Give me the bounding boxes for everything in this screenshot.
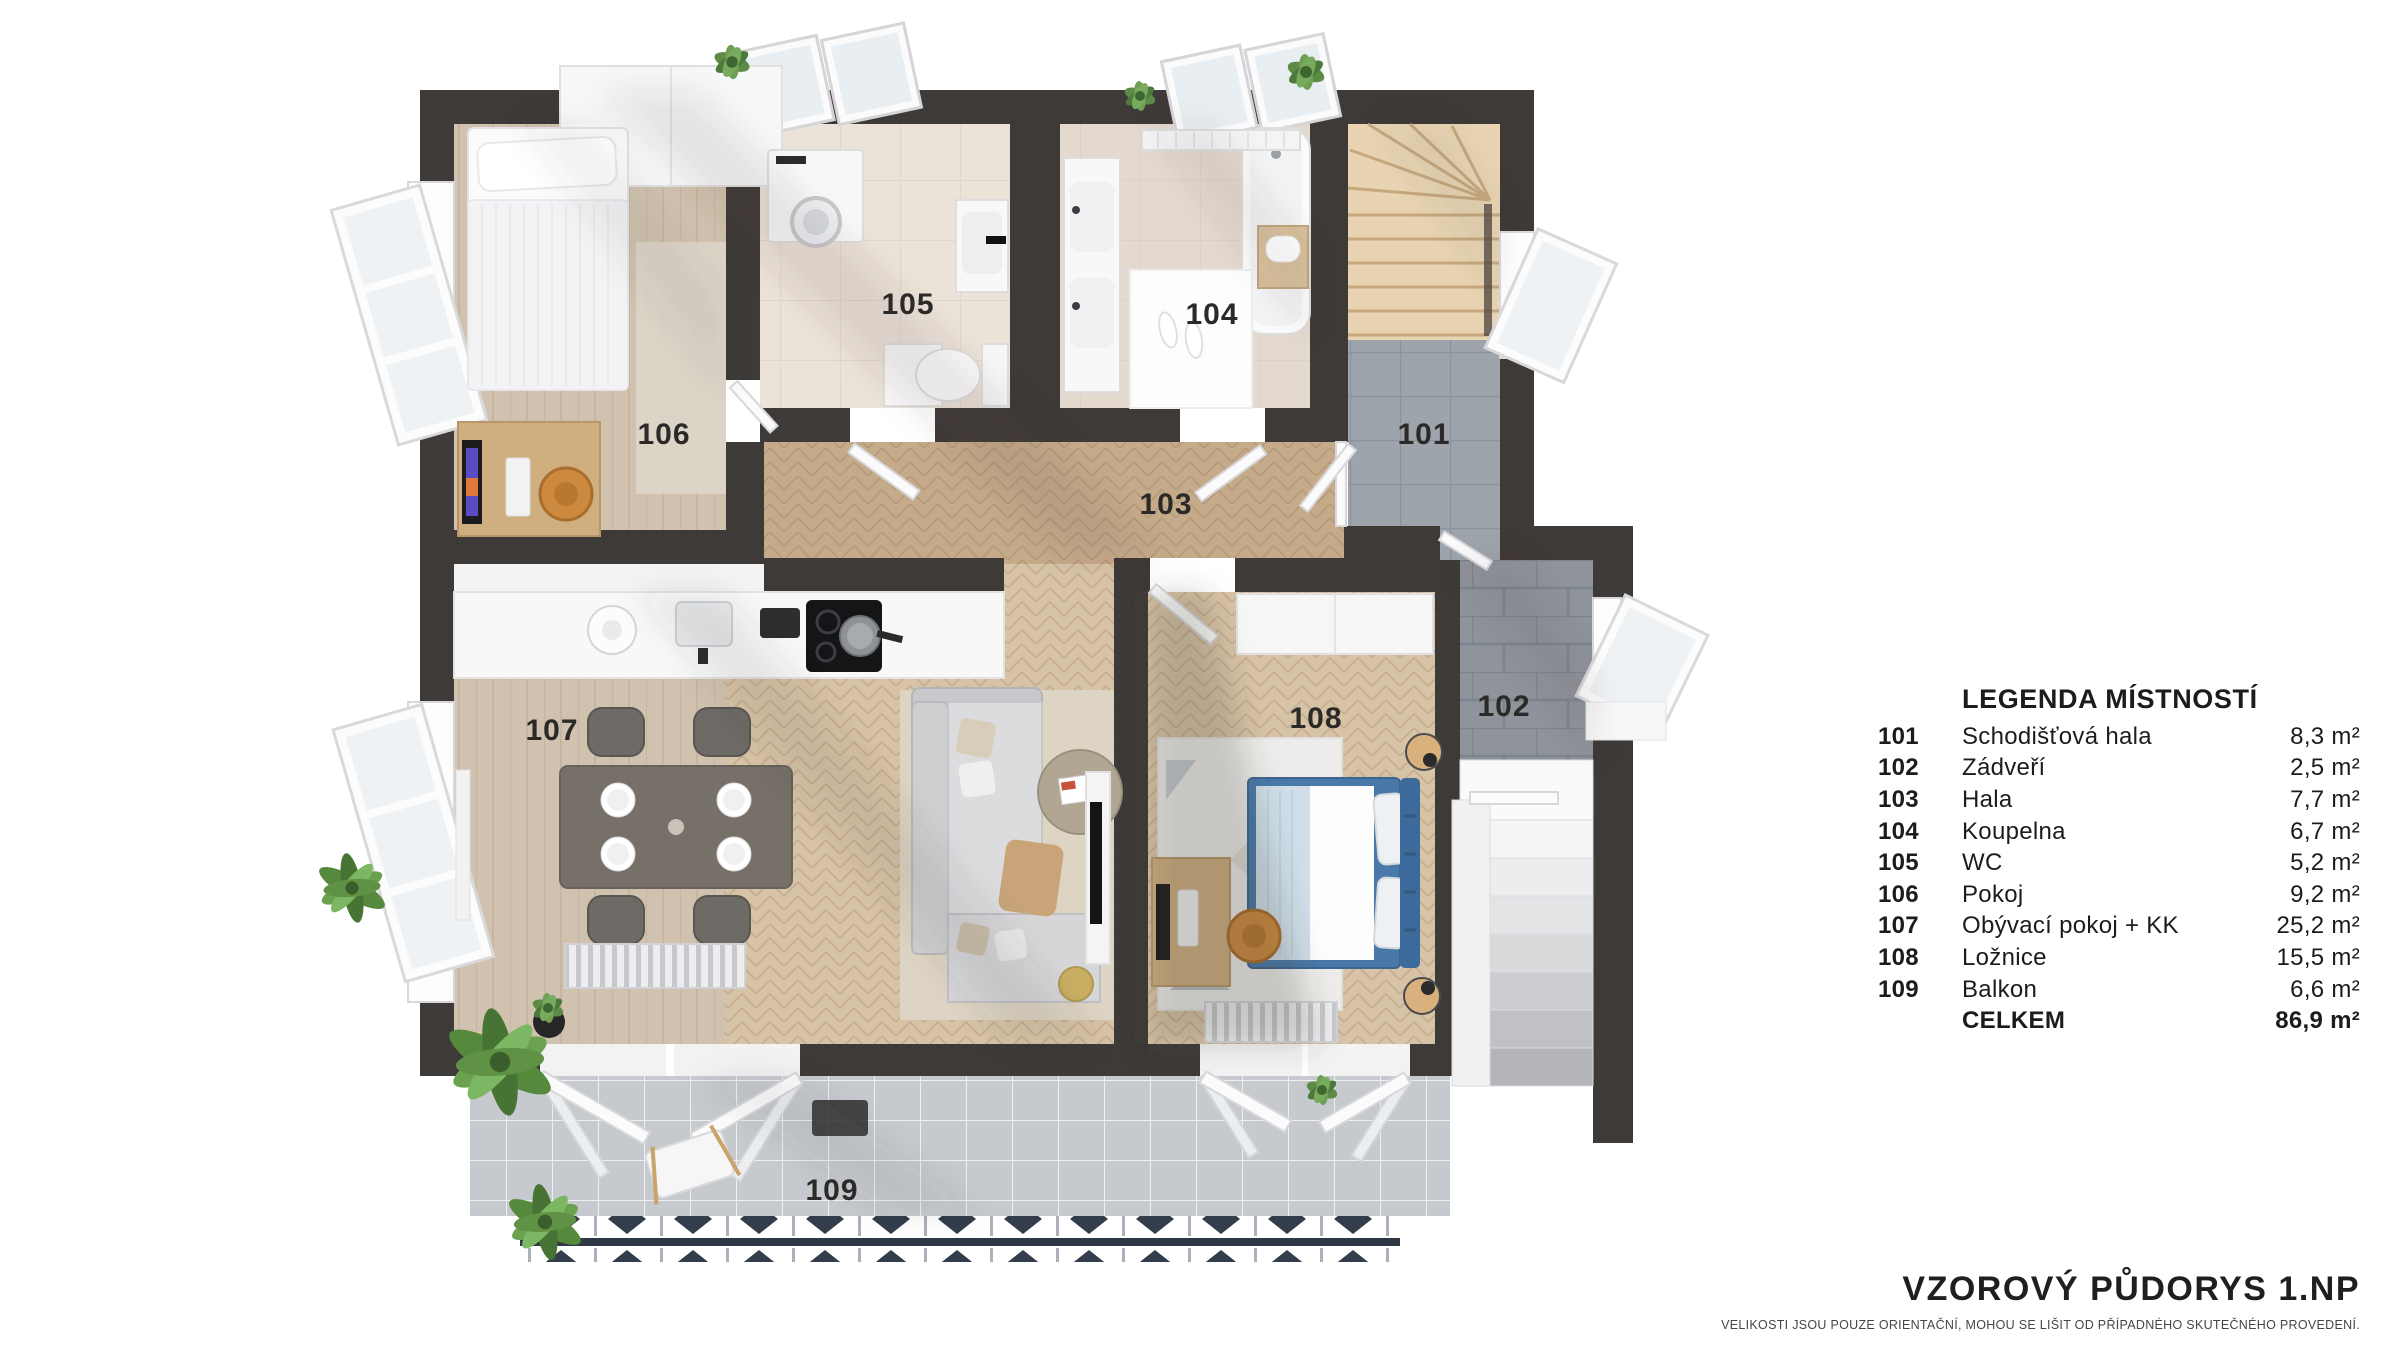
- legend-room-area: 7,7 m²: [2290, 786, 2360, 814]
- room-label-108: 108: [1289, 702, 1342, 735]
- room-label-105: 105: [881, 288, 934, 321]
- legend-row: 108 Ložnice 15,5 m²: [1878, 942, 2360, 974]
- legend-room-name: Pokoj: [1962, 881, 2290, 909]
- legend-room-area: 6,6 m²: [2290, 976, 2360, 1004]
- sink-icon: [956, 200, 1008, 292]
- legend-row: 103 Hala 7,7 m²: [1878, 784, 2360, 816]
- legend-room-name: Hala: [1962, 786, 2290, 814]
- throw-blanket: [997, 838, 1064, 917]
- legend-row: 105 WC 5,2 m²: [1878, 847, 2360, 879]
- legend-room-number: 109: [1878, 976, 1962, 1004]
- room-label-103: 103: [1139, 488, 1192, 521]
- door-102-entry: [1470, 792, 1558, 804]
- room-label-102: 102: [1477, 690, 1530, 723]
- legend-row: 102 Zádveří 2,5 m²: [1878, 753, 2360, 785]
- legend-title: LEGENDA MÍSTNOSTÍ: [1962, 684, 2360, 715]
- legend-row: 107 Obývací pokoj + KK 25,2 m²: [1878, 911, 2360, 943]
- legend-room-area: 6,7 m²: [2290, 818, 2360, 846]
- legend-room-number: 101: [1878, 723, 1962, 751]
- legend-room-name: Zádveří: [1962, 754, 2290, 782]
- radiator-icon: [456, 770, 470, 920]
- legend-room-name: WC: [1962, 849, 2290, 877]
- side-stool: [1059, 967, 1093, 1001]
- legend-room-name: Balkon: [1962, 976, 2290, 1004]
- legend-room-number: 103: [1878, 786, 1962, 814]
- legend-room-name: Obývací pokoj + KK: [1962, 912, 2277, 940]
- legend-room-number: 104: [1878, 818, 1962, 846]
- room-legend: LEGENDA MÍSTNOSTÍ 101 Schodišťová hala 8…: [1878, 684, 2360, 1037]
- legend-row: 101 Schodišťová hala 8,3 m²: [1878, 721, 2360, 753]
- legend-room-area: 9,2 m²: [2290, 881, 2360, 909]
- legend-room-name: Ložnice: [1962, 944, 2277, 972]
- plan-footer: VZOROVÝ PŮDORYS 1.NP VELIKOSTI JSOU POUZ…: [1721, 1270, 2360, 1332]
- window-102: [1576, 595, 1708, 740]
- double-washbasin-icon: [1064, 158, 1120, 392]
- nightstand-icon: [1404, 978, 1440, 1014]
- legend-row: 106 Pokoj 9,2 m²: [1878, 879, 2360, 911]
- legend-total-label: CELKEM: [1962, 1007, 2275, 1035]
- legend-room-name: Koupelna: [1962, 818, 2290, 846]
- legend-room-number: 107: [1878, 912, 1962, 940]
- legend-row: 109 Balkon 6,6 m²: [1878, 974, 2360, 1006]
- legend-room-area: 5,2 m²: [2290, 849, 2360, 877]
- nightstand-icon: [1406, 734, 1442, 770]
- bench: [565, 944, 745, 988]
- room-label-106: 106: [637, 418, 690, 451]
- keyboard: [506, 458, 530, 516]
- legend-total-area: 86,9 m²: [2275, 1007, 2360, 1035]
- legend-room-area: 2,5 m²: [2290, 754, 2360, 782]
- legend-room-area: 8,3 m²: [2290, 723, 2360, 751]
- room-label-104: 104: [1185, 298, 1238, 331]
- plan-title: VZOROVÝ PŮDORYS 1.NP: [1721, 1270, 2360, 1309]
- plan-disclaimer: VELIKOSTI JSOU POUZE ORIENTAČNÍ, MOHOU S…: [1721, 1318, 2360, 1332]
- floor-109: [470, 1076, 1450, 1216]
- legend-room-number: 106: [1878, 881, 1962, 909]
- exterior-stairs: [1452, 760, 1593, 1086]
- decorative-tile-border: [520, 1216, 1400, 1262]
- floor-plan: 101 102 103 104 105 106 107 108 109: [0, 0, 2400, 1350]
- legend-room-area: 15,5 m²: [2277, 944, 2360, 972]
- legend-room-number: 108: [1878, 944, 1962, 972]
- room-label-107: 107: [525, 714, 578, 747]
- legend-room-number: 102: [1878, 754, 1962, 782]
- legend-row-total: CELKEM 86,9 m²: [1878, 1005, 2360, 1037]
- room-label-109: 109: [805, 1174, 858, 1207]
- legend-row: 104 Koupelna 6,7 m²: [1878, 816, 2360, 848]
- room-label-101: 101: [1397, 418, 1450, 451]
- kitchen-upper-cabinet: [454, 564, 764, 592]
- legend-room-name: Schodišťová hala: [1962, 723, 2290, 751]
- legend-room-area: 25,2 m²: [2277, 912, 2360, 940]
- toaster-icon: [760, 608, 800, 638]
- legend-room-number: 105: [1878, 849, 1962, 877]
- tv-icon: [1086, 772, 1110, 964]
